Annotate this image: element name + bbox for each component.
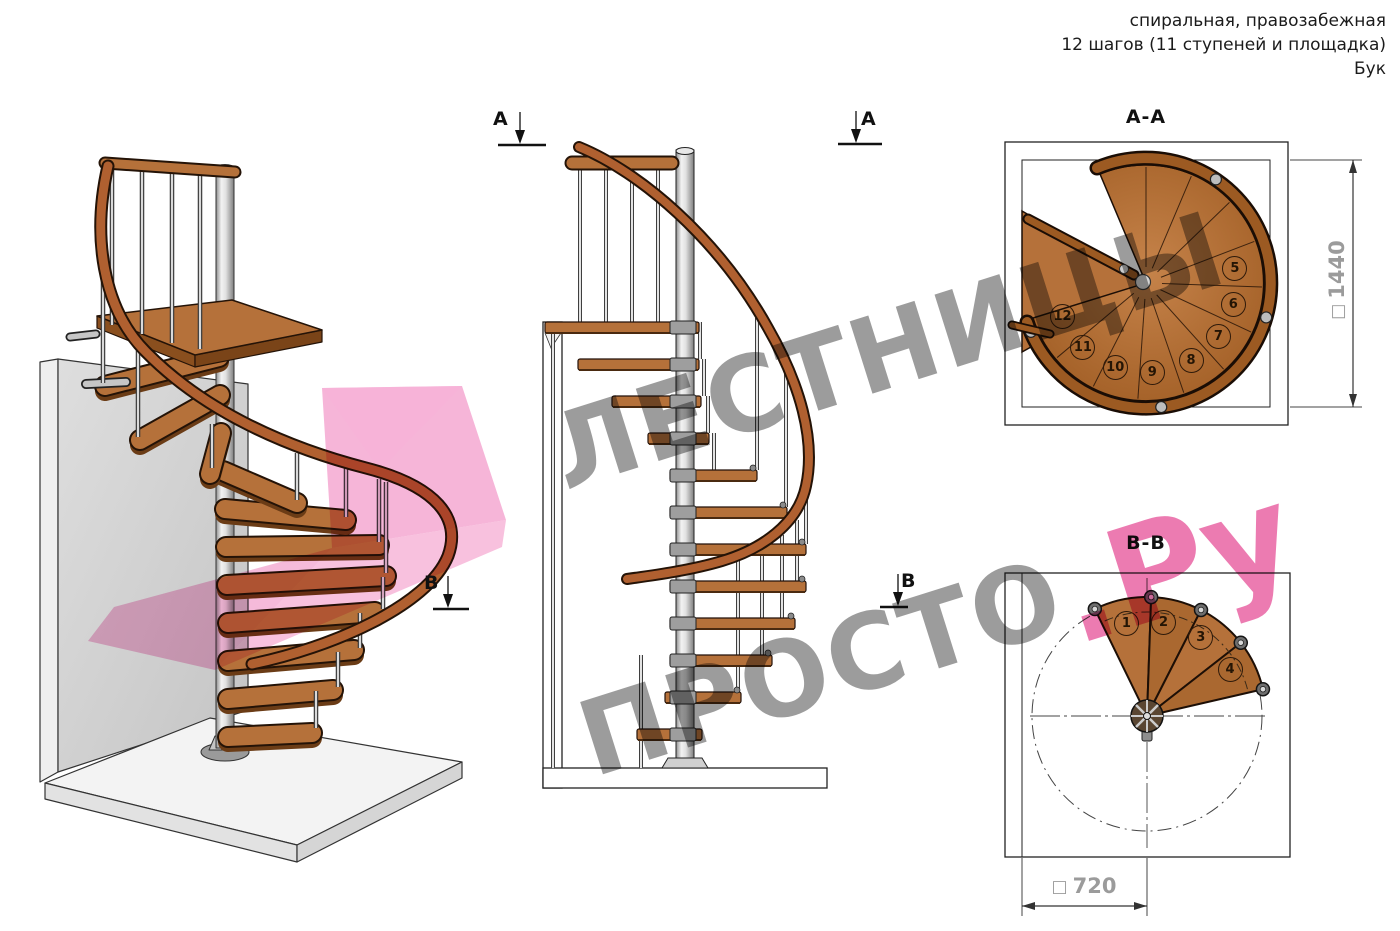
marker-b-left-letter: В — [424, 572, 438, 594]
section-aa-label: А-А — [1086, 106, 1206, 128]
marker-a-left-letter: А — [493, 108, 508, 130]
step-number-circle: 9 — [1140, 360, 1165, 385]
stair-steps-line: 12 шагов (11 ступеней и площадка) — [1061, 34, 1386, 58]
stair-type-line: спиральная, правозабежная — [1061, 10, 1386, 34]
bb-dimension-value: 720 — [1073, 874, 1117, 898]
square-symbol: □ — [1328, 304, 1348, 320]
iso-landing-handrail — [105, 163, 235, 172]
step-number-circle: 8 — [1179, 348, 1204, 373]
step-number-circle: 7 — [1206, 324, 1231, 349]
step-number-circle: 4 — [1218, 657, 1243, 682]
stair-material-line: Бук — [1061, 58, 1386, 82]
square-symbol: □ — [1052, 877, 1068, 897]
technical-drawing-sheet: 567891011121234 спиральная, правозабежна… — [0, 0, 1400, 931]
aa-dimension-value: 1440 — [1325, 240, 1349, 298]
elevation-pole-cap — [676, 148, 694, 155]
aa-dimension-text: □1440 — [1325, 210, 1349, 350]
marker-a-right-letter: А — [861, 108, 876, 130]
bb-dimension-text: □720 — [1014, 874, 1154, 898]
title-block: спиральная, правозабежная 12 шагов (11 с… — [1061, 10, 1386, 81]
step-number-circle: 10 — [1103, 355, 1128, 380]
